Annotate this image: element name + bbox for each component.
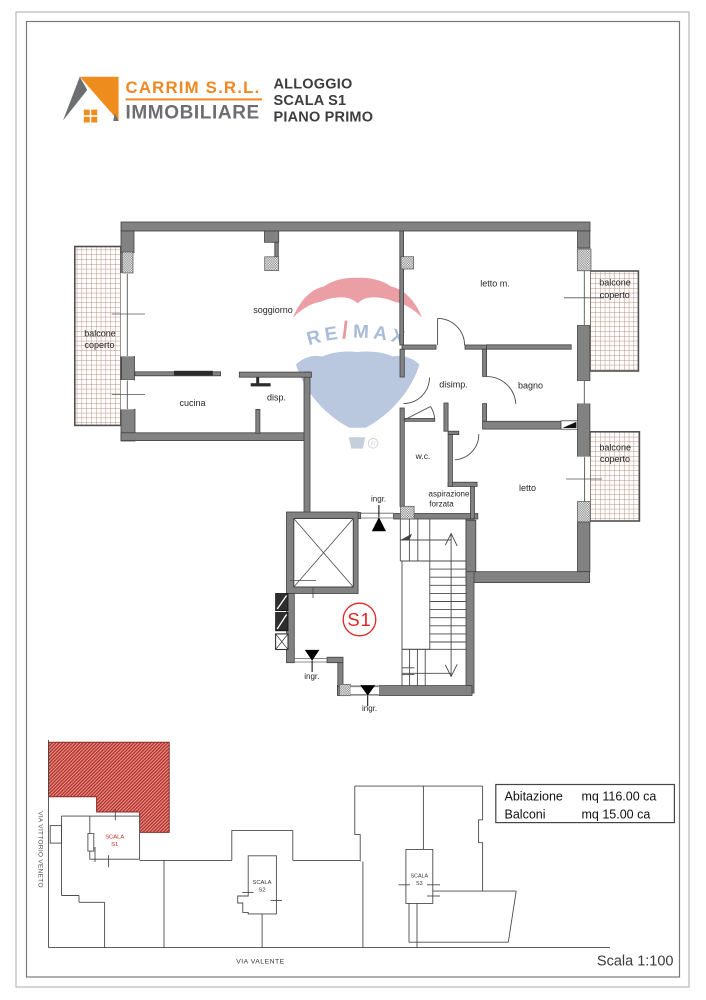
svg-text:mq 116.00 ca: mq 116.00 ca <box>582 790 657 804</box>
svg-text:balcone: balcone <box>599 278 631 288</box>
svg-text:ingr.: ingr. <box>362 704 377 713</box>
svg-text:R: R <box>371 441 376 448</box>
svg-text:w.c.: w.c. <box>415 451 431 461</box>
svg-text:SCALA: SCALA <box>410 874 428 880</box>
svg-text:coperto: coperto <box>84 340 114 350</box>
svg-text:SCALA S1: SCALA S1 <box>274 93 347 109</box>
svg-text:disp.: disp. <box>267 393 286 403</box>
svg-text:Abitazione: Abitazione <box>505 790 563 804</box>
svg-text:S1: S1 <box>111 842 118 848</box>
svg-text:CARRIM S.R.L.: CARRIM S.R.L. <box>126 78 261 97</box>
svg-text:S2: S2 <box>258 887 265 893</box>
svg-text:coperto: coperto <box>600 454 630 464</box>
svg-text:VIA VITTORIO VENETO: VIA VITTORIO VENETO <box>37 811 44 888</box>
svg-text:soggiorno: soggiorno <box>253 305 293 315</box>
svg-text:aspirazione: aspirazione <box>429 490 470 499</box>
svg-text:forzata: forzata <box>429 500 454 509</box>
svg-text:S1: S1 <box>347 609 371 630</box>
svg-text:SCALA: SCALA <box>105 835 124 841</box>
svg-text:VIA VALENTE: VIA VALENTE <box>236 959 284 966</box>
svg-text:ingr.: ingr. <box>371 495 386 504</box>
svg-text:S3: S3 <box>416 881 423 887</box>
svg-text:bagno: bagno <box>518 381 543 391</box>
svg-text:disimp.: disimp. <box>439 380 468 390</box>
svg-text:balcone: balcone <box>84 329 116 339</box>
svg-text:SCALA: SCALA <box>252 880 271 886</box>
svg-text:Balconi: Balconi <box>505 808 546 822</box>
svg-text:coperto: coperto <box>600 290 630 300</box>
svg-text:letto m.: letto m. <box>480 279 510 289</box>
svg-text:Scala 1:100: Scala 1:100 <box>597 954 674 970</box>
svg-text:letto: letto <box>519 483 536 493</box>
svg-text:PIANO PRIMO: PIANO PRIMO <box>274 110 374 126</box>
svg-text:ALLOGGIO: ALLOGGIO <box>274 77 353 93</box>
svg-text:cucina: cucina <box>179 398 205 408</box>
svg-text:balcone: balcone <box>599 442 631 452</box>
svg-text:ingr.: ingr. <box>304 672 319 681</box>
svg-text:IMMOBILIARE: IMMOBILIARE <box>126 103 260 124</box>
svg-text:mq 15.00 ca: mq 15.00 ca <box>582 808 651 822</box>
